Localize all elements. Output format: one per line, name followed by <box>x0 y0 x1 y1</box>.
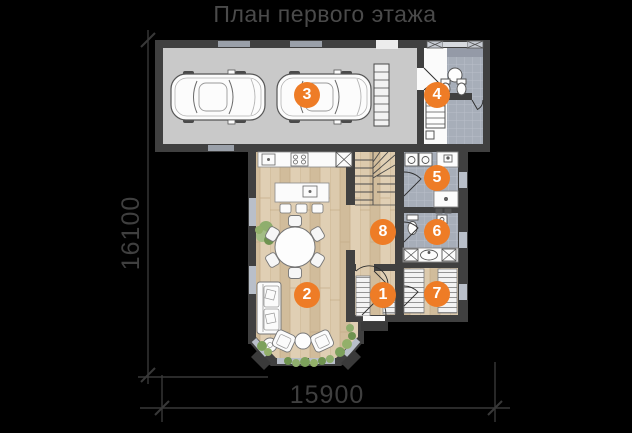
storage-rack-icon <box>374 64 389 126</box>
room-marker-2: 2 <box>294 282 320 308</box>
room-marker-6: 6 <box>424 219 450 245</box>
toilet-icon <box>408 222 417 235</box>
room-marker-3: 3 <box>294 82 320 108</box>
room-marker-4: 4 <box>424 82 450 108</box>
room-marker-8: 8 <box>370 219 396 245</box>
floor-plan-drawing <box>0 0 632 433</box>
room-marker-7: 7 <box>424 281 450 307</box>
dimension-width-label: 15900 <box>267 381 387 410</box>
page-title: План первого этажа <box>9 1 632 28</box>
bar-stools <box>280 204 323 213</box>
room-marker-5: 5 <box>424 165 450 191</box>
washer-icon <box>405 153 418 166</box>
sofa <box>257 282 281 334</box>
bidet-icon <box>457 83 466 95</box>
kitchen-island <box>275 183 329 202</box>
dimension-height-label: 16100 <box>117 173 145 293</box>
dryer-icon <box>419 153 432 166</box>
room-marker-1: 1 <box>370 282 396 308</box>
entry-step <box>361 322 388 331</box>
floor-plan-page: План первого этажа 16100 15900 1 2 3 4 5… <box>0 0 632 433</box>
side-table <box>295 333 311 349</box>
